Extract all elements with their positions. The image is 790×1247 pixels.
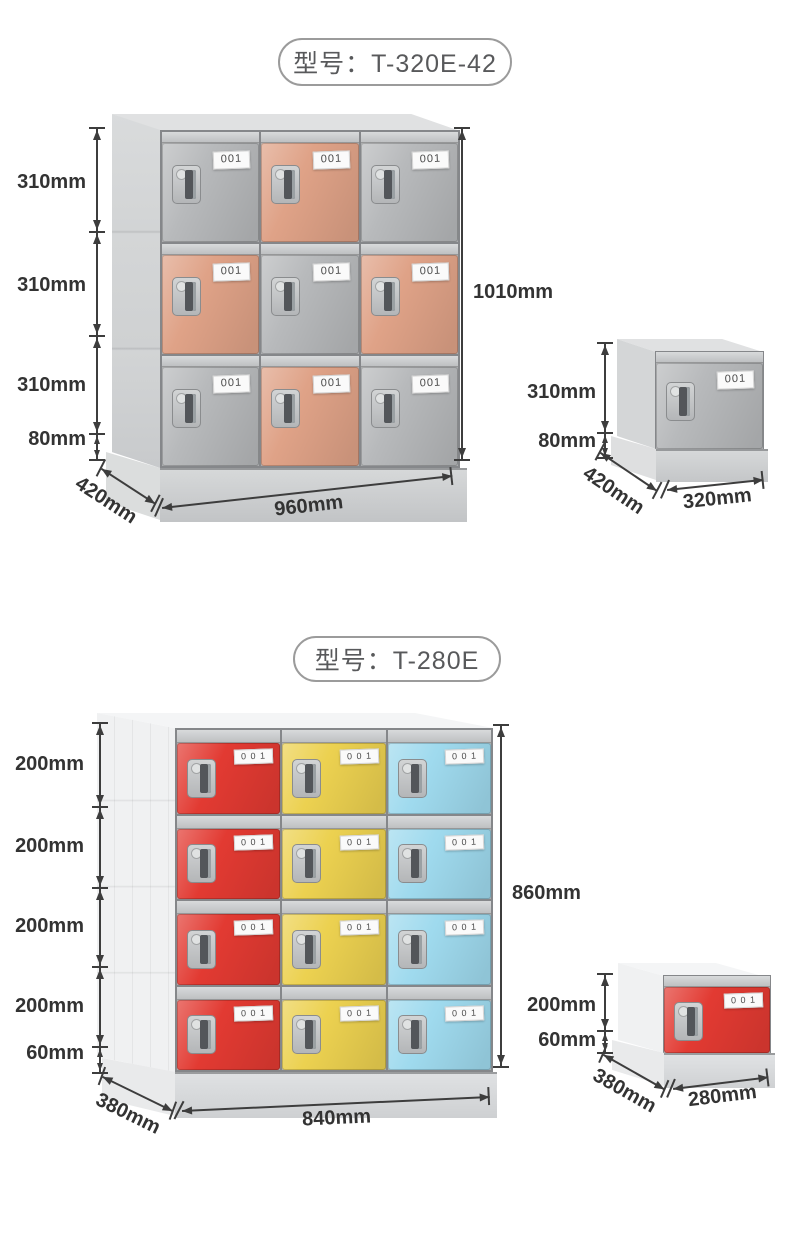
locker-door-gray: 001 [261, 255, 358, 354]
locker-door-blue: 0 0 1 [388, 914, 491, 985]
door-handle [292, 930, 321, 969]
door-handle [398, 844, 427, 883]
door-number-plate: 0 0 1 [445, 748, 484, 764]
locker-module: 0 0 1 [177, 987, 280, 1071]
module-cap [162, 356, 259, 367]
door-number-plate: 0 0 1 [445, 919, 484, 935]
module-cap [162, 132, 259, 143]
door-number-plate: 001 [312, 262, 350, 281]
door-handle [371, 389, 400, 428]
locker-module: 001 [361, 132, 458, 242]
handle-slot [284, 170, 295, 199]
locker-module: 0 0 1 [388, 901, 491, 985]
door-number-plate: 0 0 1 [445, 834, 484, 850]
door-handle [398, 1015, 427, 1054]
door-number-plate: 0 0 1 [339, 748, 378, 764]
locker-module: 001 [162, 356, 259, 466]
door-number-plate: 0 0 1 [234, 919, 273, 935]
model-title-1: 型号：T-320E-42 [278, 38, 512, 86]
door-number-plate: 0 0 1 [339, 1005, 378, 1021]
handle-slot [200, 764, 211, 793]
dim-label-80: 80mm [4, 428, 86, 450]
door-handle [172, 277, 201, 316]
module-cap [656, 352, 763, 363]
door-handle [674, 1002, 703, 1041]
module-cap [361, 244, 458, 255]
door-handle [398, 930, 427, 969]
locker-module: 001 [261, 244, 358, 354]
dim-label-200-1: 200mm [2, 753, 84, 775]
door-handle [666, 382, 695, 421]
locker-module: 001 [361, 244, 458, 354]
single2-side-panel [618, 963, 664, 1053]
module-cap [177, 987, 280, 1000]
single2-locker: 0 0 1 [664, 976, 770, 1053]
locker-door-gray: 001 [162, 367, 259, 466]
door-number-plate: 001 [717, 370, 755, 389]
door-number-plate: 001 [213, 262, 251, 281]
single1-base-front [656, 449, 768, 482]
dim-label-60: 60mm [2, 1042, 84, 1064]
locker-module: 0 0 1 [177, 816, 280, 900]
dim-label-s2-60: 60mm [506, 1029, 596, 1051]
handle-slot [411, 1020, 422, 1049]
cabinet2-side-panel [97, 713, 175, 1072]
locker-module: 0 0 1 [282, 816, 385, 900]
handle-slot [411, 935, 422, 964]
module-cap [261, 244, 358, 255]
model-title-1-text: 型号：T-320E-42 [293, 44, 497, 80]
door-number-plate: 0 0 1 [234, 834, 273, 850]
locker-door-red: 0 0 1 [177, 914, 280, 985]
locker-door-blue: 0 0 1 [388, 1000, 491, 1071]
locker-module: 0 0 1 [177, 901, 280, 985]
dim-label-310-2: 310mm [4, 274, 86, 296]
door-number-plate: 001 [213, 150, 251, 169]
door-number-plate: 001 [312, 374, 350, 393]
door-number-plate: 0 0 1 [339, 834, 378, 850]
door-number-plate: 001 [412, 150, 450, 169]
door-number-plate: 0 0 1 [339, 919, 378, 935]
single1-locker: 001 [656, 352, 763, 449]
module-cap [282, 730, 385, 743]
door-handle [371, 165, 400, 204]
handle-slot [411, 764, 422, 793]
door-handle [172, 165, 201, 204]
locker-module: 0 0 1 [388, 987, 491, 1071]
cabinet1-side-panel [112, 114, 160, 468]
locker-module: 0 0 1 [177, 730, 280, 814]
locker-door-red: 0 0 1 [177, 743, 280, 814]
locker-door-yellow: 0 0 1 [282, 914, 385, 985]
cabinet2-door-grid: 0 0 10 0 10 0 10 0 10 0 10 0 10 0 10 0 1… [175, 728, 493, 1072]
locker-module: 001 [261, 132, 358, 242]
locker-door-blue: 0 0 1 [388, 743, 491, 814]
dim-label-200-4: 200mm [2, 995, 84, 1017]
locker-door-red: 0 0 1 [177, 1000, 280, 1071]
handle-slot [185, 394, 196, 423]
locker-door-orange: 001 [162, 255, 259, 354]
module-cap [388, 730, 491, 743]
door-number-plate: 0 0 1 [234, 1005, 273, 1021]
handle-slot [305, 1020, 316, 1049]
handle-slot [284, 394, 295, 423]
module-cap [388, 901, 491, 914]
cabinet1-door-grid: 001001001001001001001001001 [160, 130, 460, 468]
dim-label-200-3: 200mm [2, 915, 84, 937]
door-handle [187, 1015, 216, 1054]
module-cap [361, 356, 458, 367]
locker-door-orange: 001 [361, 255, 458, 354]
locker-module: 001 [162, 244, 259, 354]
door-handle [172, 389, 201, 428]
model-title-2-text: 型号：T-280E [315, 641, 480, 677]
door-number-plate: 0 0 1 [724, 992, 763, 1008]
module-cap [261, 356, 358, 367]
module-cap [361, 132, 458, 143]
module-cap [282, 816, 385, 829]
module-cap [177, 901, 280, 914]
door-number-plate: 001 [412, 374, 450, 393]
door-handle [292, 1015, 321, 1054]
locker-module: 0 0 1 [282, 730, 385, 814]
handle-slot [305, 764, 316, 793]
handle-slot [687, 1007, 698, 1036]
handle-slot [411, 849, 422, 878]
module-cap [162, 244, 259, 255]
locker-door-yellow: 0 0 1 [282, 829, 385, 900]
dim-label-s2-200: 200mm [506, 994, 596, 1016]
model-title-2: 型号：T-280E [293, 636, 501, 682]
door-handle [292, 844, 321, 883]
handle-slot [305, 935, 316, 964]
single1-side-panel [617, 339, 656, 449]
door-handle [371, 277, 400, 316]
product-dimension-sheet: 型号：T-320E-42 001001001001001001001001001… [0, 0, 790, 1247]
locker-module: 001 [261, 356, 358, 466]
locker-module: 0 0 1 [388, 730, 491, 814]
handle-slot [284, 282, 295, 311]
locker-module: 0 0 1 [388, 816, 491, 900]
door-number-plate: 001 [412, 262, 450, 281]
door-number-plate: 001 [213, 374, 251, 393]
locker-module: 001 [162, 132, 259, 242]
handle-slot [305, 849, 316, 878]
dim-label-1010: 1010mm [473, 281, 568, 303]
locker-door-orange: 001 [261, 143, 358, 242]
module-cap [664, 976, 770, 987]
door-number-plate: 0 0 1 [445, 1005, 484, 1021]
locker-module: 0 0 1 [282, 901, 385, 985]
door-handle [292, 759, 321, 798]
handle-slot [200, 1020, 211, 1049]
door-number-plate: 001 [312, 150, 350, 169]
locker-door-blue: 0 0 1 [388, 829, 491, 900]
dim-label-s1-310: 310mm [506, 381, 596, 403]
module-cap [177, 816, 280, 829]
locker-door-gray: 001 [361, 367, 458, 466]
module-cap [388, 816, 491, 829]
handle-slot [185, 282, 196, 311]
handle-slot [384, 282, 395, 311]
locker-door-yellow: 0 0 1 [282, 1000, 385, 1071]
dim-label-200-2: 200mm [2, 835, 84, 857]
module-cap [261, 132, 358, 143]
locker-door-gray: 001 [162, 143, 259, 242]
locker-door-yellow: 0 0 1 [282, 743, 385, 814]
handle-slot [200, 935, 211, 964]
door-handle [187, 930, 216, 969]
door-handle [271, 389, 300, 428]
module-cap [282, 901, 385, 914]
handle-slot [185, 170, 196, 199]
locker-door-red: 0 0 1 [177, 829, 280, 900]
locker-door-gray: 001 [656, 363, 763, 449]
dim-label-310-1: 310mm [4, 171, 86, 193]
module-cap [282, 987, 385, 1000]
door-number-plate: 0 0 1 [234, 748, 273, 764]
door-handle [187, 844, 216, 883]
dim-label-860: 860mm [512, 882, 607, 904]
cabinet1-top-face [112, 114, 460, 131]
dim-label-s1-80: 80mm [506, 430, 596, 452]
locker-module: 0 0 1 [282, 987, 385, 1071]
handle-slot [384, 170, 395, 199]
door-handle [271, 165, 300, 204]
dim-label-310-3: 310mm [4, 374, 86, 396]
door-handle [187, 759, 216, 798]
locker-door-gray: 001 [361, 143, 458, 242]
module-cap [388, 987, 491, 1000]
locker-door-orange: 001 [261, 367, 358, 466]
door-handle [398, 759, 427, 798]
locker-module: 001 [361, 356, 458, 466]
handle-slot [384, 394, 395, 423]
door-handle [271, 277, 300, 316]
handle-slot [200, 849, 211, 878]
module-cap [177, 730, 280, 743]
locker-door-red: 0 0 1 [664, 987, 770, 1053]
handle-slot [679, 387, 690, 416]
